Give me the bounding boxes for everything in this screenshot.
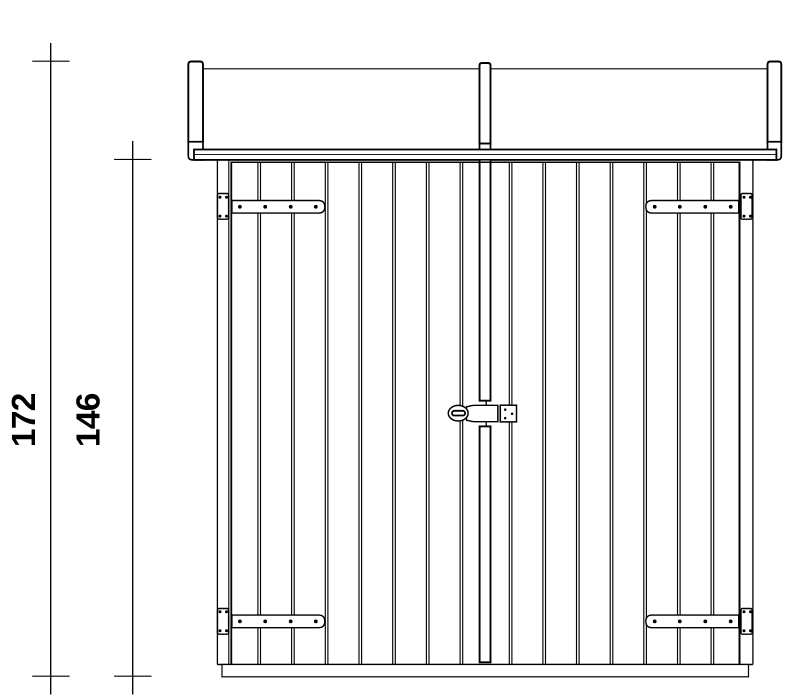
- svg-text:146: 146: [70, 393, 107, 447]
- svg-text:172: 172: [6, 393, 43, 447]
